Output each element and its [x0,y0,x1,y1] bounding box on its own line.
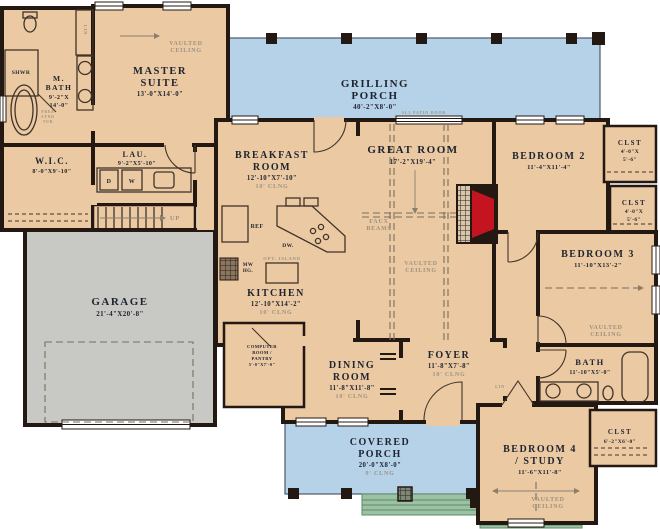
mw-label1: MW [243,263,254,268]
clst-br-name: CLST [608,428,632,436]
bedroom2-name: BEDROOM 2 [512,151,586,162]
dining-dims: 11'-8"X11'-8" [329,385,375,392]
master-vaulted2: CEILING [170,48,202,54]
floor-plan: MASTER SUITE 13'-0"X14'-0" VAULTED CEILI… [0,0,660,529]
computer-name2: ROOM / [252,350,272,355]
kitchen-name: KITCHEN [247,288,305,299]
clst-top-name: CLST [618,139,642,147]
computer-name3: PANTRY [251,356,272,361]
bedroom2-dims: 11'-4"X11'-4" [527,164,571,171]
microwave-hatch [220,258,238,280]
dining-name1: DINING [329,360,375,371]
garage-dims: 21'-4"X20'-8" [96,310,144,318]
covered-name2: PORCH [358,449,402,460]
covered-clng: 9' CLNG [365,471,394,477]
up-label: UP [170,215,180,222]
mbath-name1: M. [53,74,65,83]
breakfast-clng: 10' CLNG [256,184,289,190]
dining-name2: ROOM [333,372,371,383]
bedroom4-name1: BEDROOM 4 [503,444,577,455]
fireplace-hatch [458,186,470,242]
computer-name1: COMPUTER [247,344,277,349]
bath-dims: 11'-10"X5'-0" [569,370,610,376]
island-label: OPT. ISLAND [263,256,301,261]
patio-door [396,116,462,124]
bedroom4-vaulted1: VAULTED [531,497,565,503]
garage-name: GARAGE [91,296,148,308]
clst-top-dims2: 5'-6" [623,157,637,163]
covered-dims: 20'-0"X8'-0" [359,462,402,469]
master-name2: SUITE [140,78,179,89]
foyer-clng: 10' CLNG [433,372,466,378]
kitchen-clng: 10' CLNG [260,310,293,316]
patio-door-note: SL3 PATIO DOOR [402,110,446,115]
grilling-porch-floor [228,38,600,120]
breakfast-dims: 12'-10"X7'-10" [247,175,297,182]
clst-mid-dims2: 5'-6" [627,217,641,223]
bedroom4-name2: / STUDY [514,456,565,467]
mw-label2: HG. [243,269,254,274]
ref-label: REF [251,224,264,230]
dryer-label: D [107,179,112,185]
mbath-dims2: 14'-0" [50,102,69,109]
bedroom3-dims: 11'-10"X13'-2" [574,262,622,269]
covered-name1: COVERED [350,437,411,448]
breakfast-name2: ROOM [253,162,291,173]
clst-mid-name: CLST [622,199,646,207]
bedroom3-name: BEDROOM 3 [561,249,635,260]
lin-label-2: LIN [495,384,505,389]
tub-note3: TUB [43,120,53,124]
great-vaulted1: VAULTED [404,261,438,267]
breakfast-name1: BREAKFAST [235,150,309,161]
faux-label1: FAUX [369,219,388,225]
wic-dims: 8'-0"X9'-10" [32,168,71,175]
clst-mid-dims1: 4'-0"X [625,209,643,215]
foyer-name: FOYER [428,350,471,361]
clst-br-dims: 6'-2"X6'-0" [604,439,636,445]
mbath-dims1: 9'-2"X [49,94,69,101]
room-bedroom2 [494,120,608,232]
tub-note1: FREE [41,110,54,114]
great-name: GREAT ROOM [367,144,458,156]
grilling-dims: 40'-2"X8'-0" [353,103,397,111]
floor-plan-svg: MASTER SUITE 13'-0"X14'-0" VAULTED CEILI… [0,0,660,529]
master-name1: MASTER [133,66,187,77]
great-vaulted2: CEILING [405,268,437,274]
computer-dims: 5'-0"X7'-0" [249,362,276,367]
master-dims: 13'-0"X14'-0" [137,91,183,98]
tub-note2: STND [41,115,54,119]
clst-top-dims1: 4'-0"X [621,149,639,155]
foyer-dims: 11'-8"X7'-8" [428,363,470,370]
great-dims: 17'-2"X19'-4" [390,159,436,166]
bedroom3-vaulted2: CEILING [590,332,622,338]
hatched-post-grid [398,487,412,501]
bath-name: BATH [575,357,604,367]
bedroom4-vaulted2: CEILING [532,504,564,510]
shwr-label: SHWR [12,70,31,76]
washer-label: W [129,179,135,185]
room-master-bath [2,8,93,145]
grilling-name1: GRILLING [341,78,409,90]
bedroom3-vaulted1: VAULTED [589,325,623,331]
lau-dims: 9'-2"X5'-10" [118,161,156,167]
grilling-name2: PORCH [351,90,398,102]
room-garage [25,230,215,425]
room-clst-br [590,410,656,466]
mbath-name2: BATH [46,83,73,92]
master-vaulted1: VAULTED [169,41,203,47]
dining-clng: 10' CLNG [336,394,369,400]
faux-label2: BEAMS [366,226,391,232]
wic-name: W.I.C. [35,156,69,166]
lin-label-1: LIN [83,25,88,35]
bedroom4-dims: 11'-6"X11'-8" [518,469,562,476]
dw-label: DW. [282,243,294,249]
lau-name: LAU. [123,150,148,159]
kitchen-dims: 12'-10"X14'-2" [251,301,301,308]
